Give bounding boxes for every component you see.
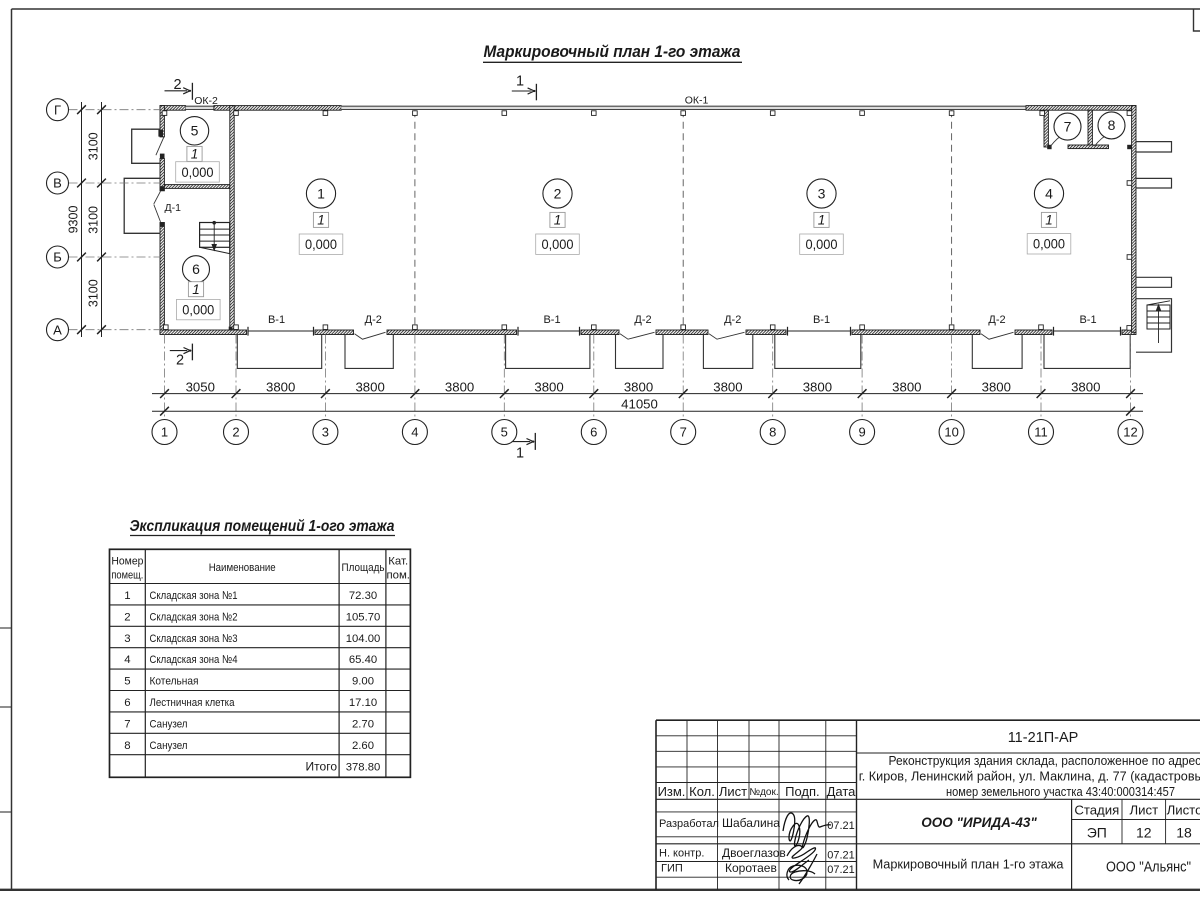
svg-text:ООО "ИРИДА-43": ООО "ИРИДА-43": [921, 815, 1037, 830]
svg-text:ОК-1: ОК-1: [685, 94, 709, 106]
svg-text:6: 6: [192, 261, 200, 277]
svg-text:Складская зона №4: Складская зона №4: [150, 654, 238, 666]
svg-text:4: 4: [124, 654, 130, 666]
svg-text:07.21: 07.21: [827, 849, 855, 861]
svg-text:В-1: В-1: [1079, 314, 1096, 326]
svg-text:0,000: 0,000: [182, 164, 214, 180]
svg-text:8: 8: [124, 740, 130, 752]
svg-text:Н. контр.: Н. контр.: [659, 848, 704, 860]
svg-text:Экспликация помещений 1-ого эт: Экспликация помещений 1-ого этажа: [130, 518, 395, 535]
svg-text:В-1: В-1: [813, 314, 830, 326]
svg-text:помещ.: помещ.: [111, 570, 143, 582]
svg-text:0,000: 0,000: [182, 302, 214, 318]
svg-text:Санузел: Санузел: [150, 718, 188, 730]
svg-text:8: 8: [769, 425, 776, 440]
svg-text:Маркировочный план 1-го этажа: Маркировочный план 1-го этажа: [873, 858, 1065, 872]
svg-text:3800: 3800: [713, 379, 742, 394]
svg-text:2: 2: [554, 185, 562, 201]
svg-text:3050: 3050: [186, 379, 215, 394]
svg-text:105.70: 105.70: [346, 611, 381, 623]
svg-text:Кат.: Кат.: [388, 556, 408, 568]
svg-text:Шабалина: Шабалина: [722, 816, 780, 830]
svg-text:2.60: 2.60: [352, 740, 374, 752]
svg-text:1: 1: [124, 590, 130, 602]
svg-text:ЭП: ЭП: [1087, 825, 1107, 841]
svg-text:3100: 3100: [86, 279, 100, 307]
svg-text:4: 4: [411, 425, 418, 440]
svg-text:9300: 9300: [67, 206, 81, 234]
svg-text:10: 10: [944, 425, 958, 440]
svg-text:Складская зона №1: Складская зона №1: [150, 590, 238, 602]
svg-text:9: 9: [858, 425, 865, 440]
svg-text:Лист: Лист: [719, 784, 747, 799]
svg-text:2: 2: [232, 425, 239, 440]
svg-text:Стадия: Стадия: [1074, 803, 1119, 818]
svg-text:7: 7: [1064, 118, 1072, 134]
svg-text:3100: 3100: [86, 206, 100, 234]
svg-text:07.21: 07.21: [827, 820, 855, 832]
svg-text:Итого: Итого: [306, 760, 338, 774]
svg-text:7: 7: [124, 718, 130, 730]
svg-text:2.70: 2.70: [352, 718, 374, 730]
svg-text:Изм.: Изм.: [658, 784, 686, 799]
svg-text:3800: 3800: [624, 379, 653, 394]
svg-text:3800: 3800: [534, 379, 563, 394]
svg-text:Д-2: Д-2: [724, 314, 741, 326]
svg-text:пом.: пом.: [386, 570, 410, 582]
svg-text:3800: 3800: [982, 379, 1011, 394]
svg-text:Лестничная клетка: Лестничная клетка: [150, 697, 236, 709]
svg-text:номер земельного участка 43:40: номер земельного участка 43:40:000314:45…: [946, 784, 1175, 799]
svg-text:378.80: 378.80: [346, 762, 381, 774]
svg-text:Наименование: Наименование: [209, 562, 276, 574]
svg-text:72.30: 72.30: [349, 590, 377, 602]
svg-text:1: 1: [554, 213, 562, 228]
svg-text:г. Киров, Ленинский район, ул.: г. Киров, Ленинский район, ул. Маклина, …: [859, 769, 1200, 784]
svg-text:3800: 3800: [803, 379, 832, 394]
svg-text:3100: 3100: [86, 132, 100, 160]
svg-text:18: 18: [1176, 825, 1192, 841]
svg-text:В: В: [53, 176, 62, 191]
svg-text:Д-2: Д-2: [365, 314, 382, 326]
svg-text:Листов: Листов: [1167, 803, 1200, 818]
svg-text:6: 6: [590, 425, 597, 440]
svg-text:1: 1: [317, 213, 325, 228]
svg-text:1: 1: [1045, 213, 1053, 228]
svg-text:Д-1: Д-1: [165, 202, 182, 214]
svg-text:Кол.: Кол.: [689, 784, 715, 799]
svg-text:Площадь: Площадь: [342, 562, 385, 574]
svg-text:9.00: 9.00: [352, 676, 374, 688]
svg-text:ГИП: ГИП: [661, 863, 683, 875]
svg-text:Д-2: Д-2: [988, 314, 1005, 326]
svg-text:1: 1: [191, 147, 199, 162]
svg-text:Д-2: Д-2: [634, 314, 651, 326]
svg-text:7: 7: [680, 425, 687, 440]
svg-text:1: 1: [161, 425, 168, 440]
svg-text:0,000: 0,000: [806, 236, 838, 252]
svg-text:0,000: 0,000: [1033, 236, 1065, 252]
svg-text:41050: 41050: [621, 397, 658, 412]
svg-text:ООО "Альянс": ООО "Альянс": [1106, 858, 1191, 875]
svg-text:В-1: В-1: [543, 314, 560, 326]
svg-text:1: 1: [317, 185, 325, 201]
svg-text:4: 4: [1045, 185, 1053, 201]
svg-text:0,000: 0,000: [542, 236, 574, 252]
svg-text:5: 5: [124, 676, 130, 688]
svg-text:1: 1: [818, 213, 826, 228]
svg-text:3800: 3800: [1071, 379, 1100, 394]
svg-text:Дата: Дата: [827, 784, 857, 799]
svg-text:07.21: 07.21: [827, 864, 855, 876]
svg-text:3800: 3800: [892, 379, 921, 394]
svg-text:Реконструкция здания склада, р: Реконструкция здания склада, расположенн…: [889, 753, 1200, 768]
svg-text:3: 3: [124, 633, 130, 645]
svg-text:12: 12: [1123, 425, 1137, 440]
svg-text:Коротаев: Коротаев: [725, 861, 777, 875]
svg-text:2: 2: [176, 353, 184, 369]
svg-text:3800: 3800: [355, 379, 384, 394]
svg-text:1: 1: [516, 446, 524, 462]
svg-text:8: 8: [1108, 117, 1116, 133]
svg-text:3800: 3800: [266, 379, 295, 394]
svg-text:В-1: В-1: [268, 314, 285, 326]
svg-text:Двоеглазов: Двоеглазов: [722, 846, 786, 860]
svg-text:2: 2: [124, 611, 130, 623]
svg-text:Лист: Лист: [1129, 803, 1158, 818]
svg-text:Складская зона №2: Складская зона №2: [150, 611, 238, 623]
svg-text:0,000: 0,000: [305, 236, 337, 252]
svg-text:Г: Г: [54, 102, 61, 117]
svg-text:6: 6: [124, 697, 130, 709]
svg-text:1: 1: [516, 74, 524, 90]
svg-text:№док.: №док.: [749, 787, 778, 798]
svg-text:11-21П-АР: 11-21П-АР: [1008, 730, 1079, 746]
svg-text:Маркировочный план 1-го этажа: Маркировочный план 1-го этажа: [484, 43, 741, 61]
svg-text:11: 11: [1034, 425, 1048, 440]
svg-text:Складская зона №3: Складская зона №3: [150, 633, 238, 645]
svg-text:12: 12: [1136, 825, 1152, 841]
svg-text:3: 3: [322, 425, 329, 440]
svg-text:3800: 3800: [445, 379, 474, 394]
svg-text:3: 3: [818, 185, 826, 201]
svg-text:А: А: [53, 322, 62, 337]
svg-text:Котельная: Котельная: [150, 676, 199, 688]
svg-text:104.00: 104.00: [346, 633, 381, 645]
svg-text:Подп.: Подп.: [785, 784, 820, 799]
svg-text:5: 5: [501, 425, 508, 440]
svg-text:1: 1: [192, 282, 200, 297]
svg-text:Санузел: Санузел: [150, 740, 188, 752]
svg-text:Номер: Номер: [111, 556, 143, 568]
svg-text:17.10: 17.10: [349, 697, 377, 709]
svg-text:65.40: 65.40: [349, 654, 377, 666]
svg-text:Б: Б: [53, 250, 62, 265]
svg-text:5: 5: [191, 123, 199, 139]
svg-text:Разработал: Разработал: [659, 818, 719, 830]
